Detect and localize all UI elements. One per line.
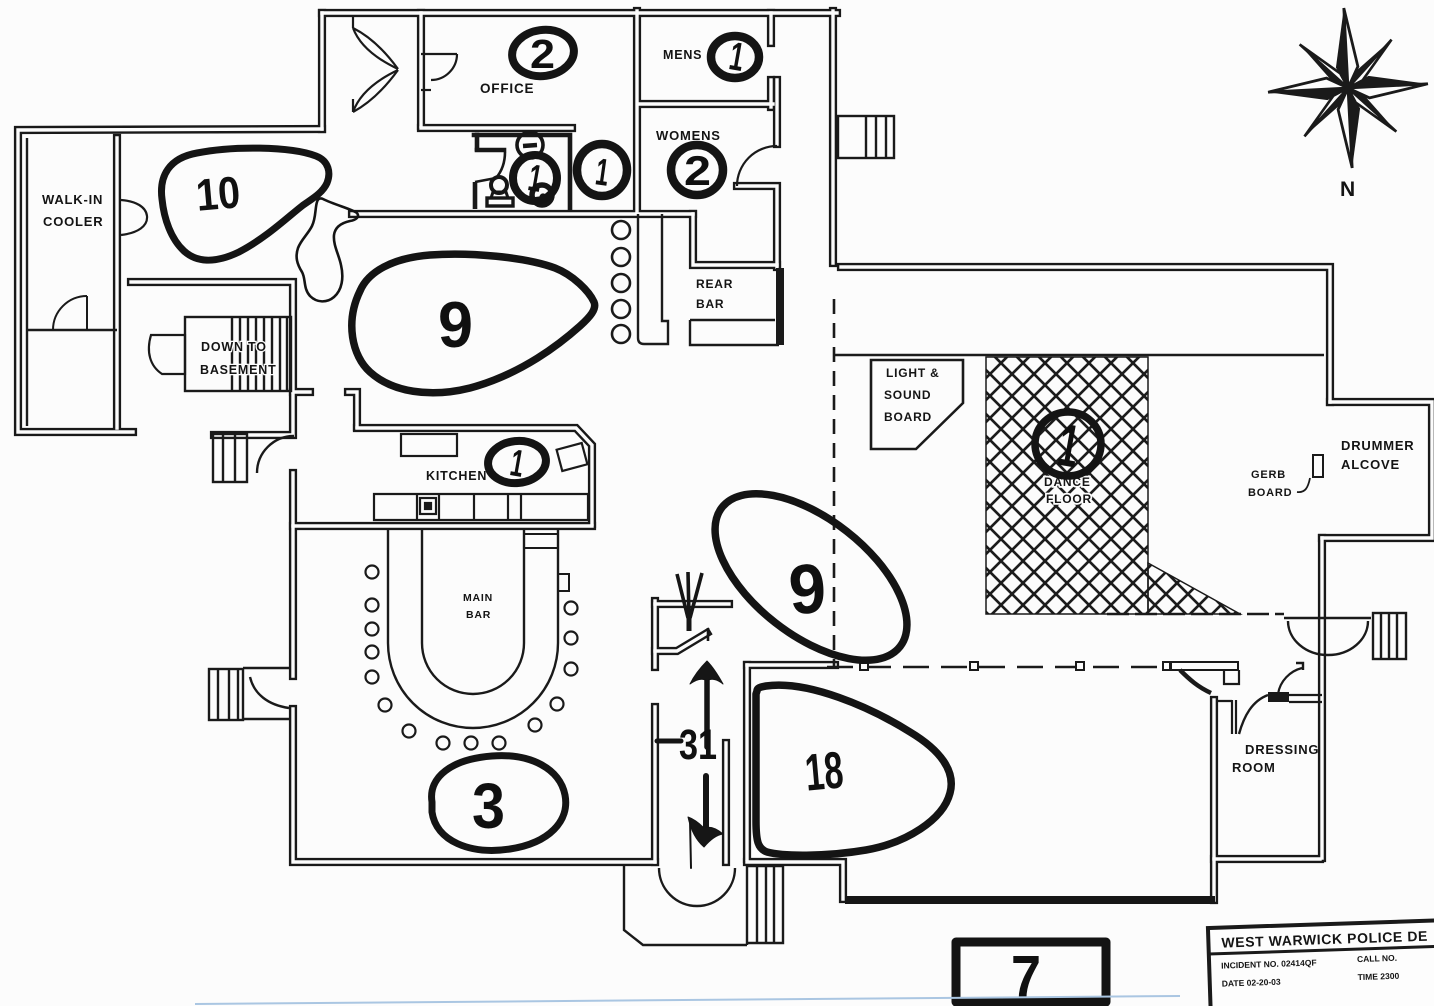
svg-text:KITCHEN: KITCHEN — [426, 469, 487, 483]
svg-text:BAR: BAR — [696, 297, 724, 311]
svg-text:MAIN: MAIN — [463, 592, 493, 604]
svg-text:CALL NO.: CALL NO. — [1357, 953, 1397, 964]
svg-text:2: 2 — [530, 31, 555, 77]
svg-text:31: 31 — [679, 721, 717, 769]
svg-text:ROOM: ROOM — [1232, 760, 1276, 775]
svg-text:DOWN TO: DOWN TO — [201, 340, 267, 354]
svg-text:GERB: GERB — [1251, 469, 1286, 481]
svg-text:COOLER: COOLER — [43, 214, 103, 229]
svg-text:BOARD: BOARD — [884, 410, 932, 424]
svg-text:TIME 2300: TIME 2300 — [1357, 971, 1399, 982]
svg-text:WALK-IN: WALK-IN — [42, 192, 103, 207]
svg-text:FLOOR: FLOOR — [1046, 492, 1092, 506]
svg-text:10: 10 — [194, 166, 242, 221]
svg-text:SOUND: SOUND — [884, 388, 931, 402]
svg-text:9: 9 — [786, 549, 828, 629]
svg-text:DRESSING: DRESSING — [1245, 742, 1319, 757]
svg-text:BAR: BAR — [466, 609, 491, 621]
svg-text:N: N — [1340, 178, 1356, 201]
svg-text:18: 18 — [803, 741, 846, 802]
svg-text:DRUMMER: DRUMMER — [1341, 438, 1414, 453]
svg-text:9: 9 — [438, 288, 473, 361]
svg-text:ALCOVE: ALCOVE — [1341, 457, 1400, 472]
svg-text:DATE 02-20-03: DATE 02-20-03 — [1222, 977, 1281, 989]
svg-text:OFFICE: OFFICE — [480, 81, 534, 96]
svg-text:BASEMENT: BASEMENT — [200, 363, 277, 377]
svg-text:BOARD: BOARD — [1248, 487, 1292, 499]
svg-text:MENS: MENS — [663, 48, 702, 62]
svg-text:2: 2 — [684, 147, 711, 194]
svg-text:3: 3 — [472, 770, 505, 842]
svg-text:REAR: REAR — [696, 277, 733, 291]
svg-text:WOMENS: WOMENS — [656, 128, 721, 143]
svg-text:LIGHT &: LIGHT & — [886, 366, 940, 380]
